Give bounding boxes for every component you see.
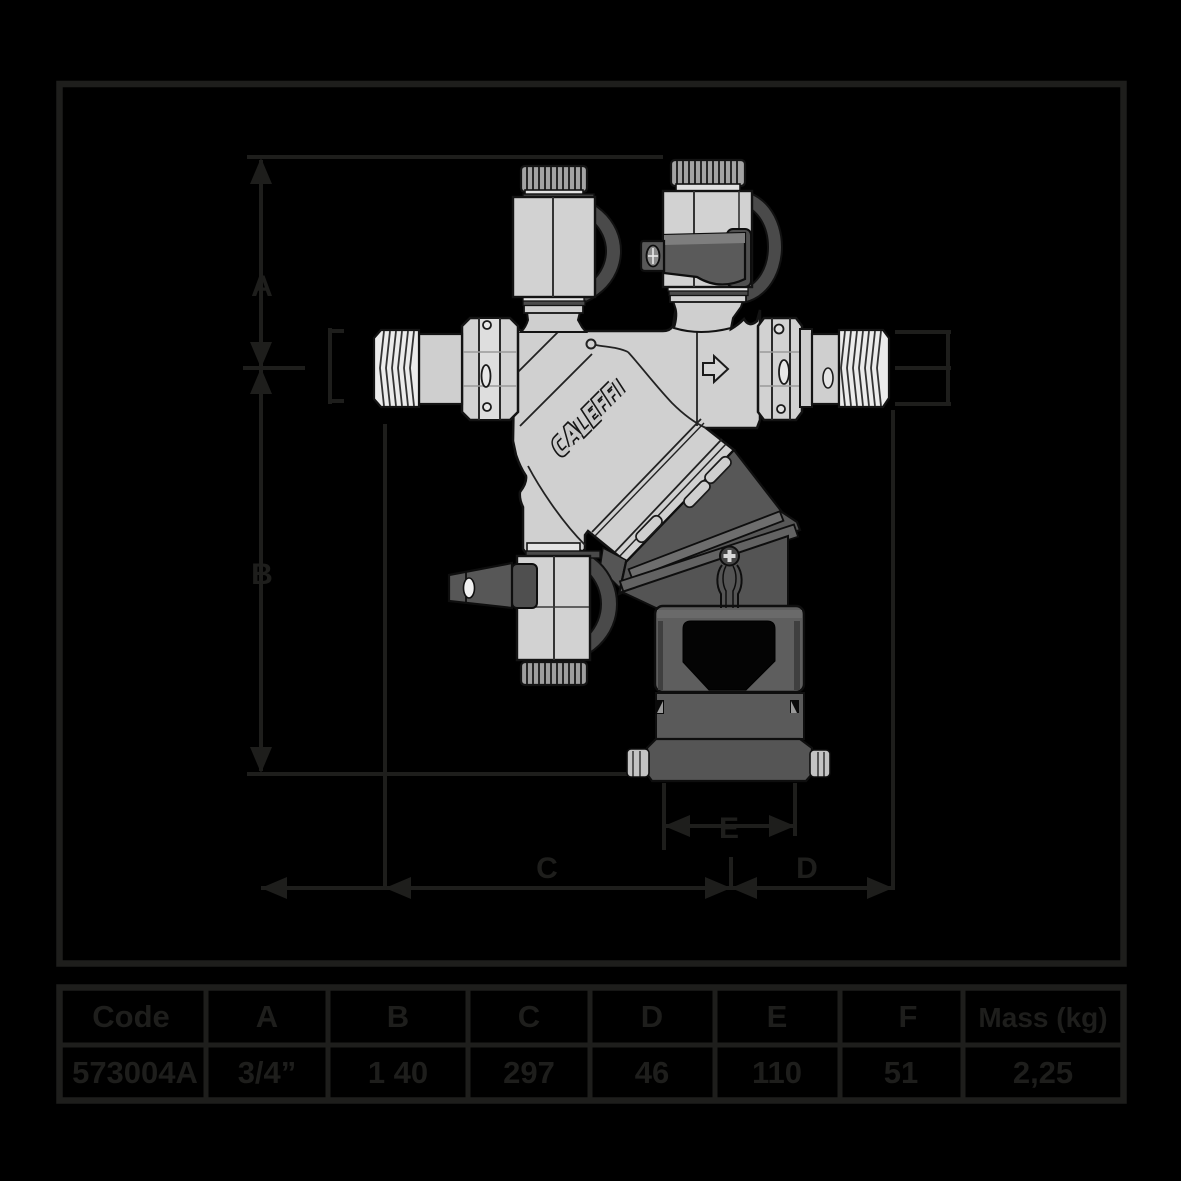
svg-text:110: 110 (752, 1055, 802, 1090)
svg-text:F: F (899, 999, 918, 1034)
svg-text:E: E (767, 999, 788, 1034)
svg-text:B: B (251, 558, 273, 591)
svg-text:3/4”: 3/4” (238, 1055, 297, 1090)
svg-text:Code: Code (92, 999, 170, 1034)
svg-text:D: D (796, 852, 818, 885)
svg-text:2,25: 2,25 (1013, 1055, 1073, 1090)
svg-text:46: 46 (635, 1055, 669, 1090)
svg-text:E: E (719, 812, 739, 845)
svg-text:D: D (641, 999, 663, 1034)
svg-text:C: C (536, 852, 558, 885)
svg-text:A: A (256, 999, 278, 1034)
svg-text:1 40: 1 40 (368, 1055, 428, 1090)
svg-text:51: 51 (884, 1055, 918, 1090)
svg-text:C: C (518, 999, 540, 1034)
svg-text:B: B (387, 999, 409, 1034)
svg-text:297: 297 (503, 1055, 555, 1090)
svg-text:573004A: 573004A (72, 1055, 198, 1090)
svg-text:Mass (kg): Mass (kg) (978, 1002, 1107, 1033)
svg-text:A: A (251, 270, 273, 303)
